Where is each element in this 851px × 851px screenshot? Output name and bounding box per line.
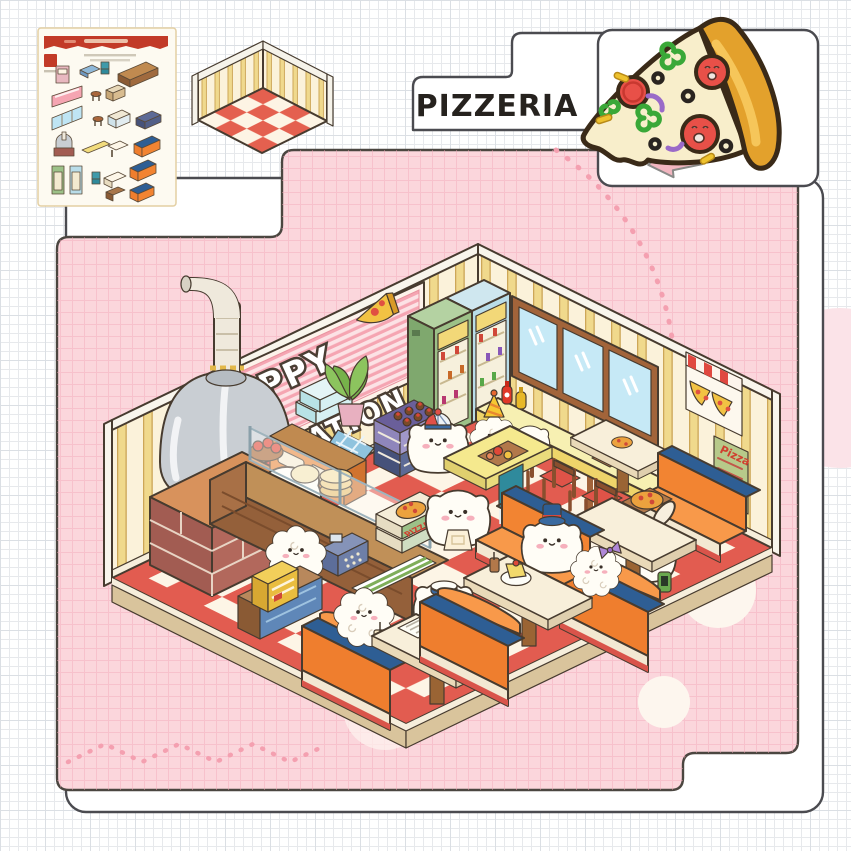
waitress-apron xyxy=(444,530,472,550)
cream-circle-2 xyxy=(638,676,690,728)
sticker-fridge-blue xyxy=(70,166,82,194)
puppy-bow xyxy=(571,547,621,596)
pizzeria-label: PIZZERIA xyxy=(416,89,579,124)
sticker-poster xyxy=(56,66,69,83)
sticker-sheet xyxy=(38,28,176,206)
sticker-teal-chair-2 xyxy=(92,172,100,184)
illustration: PIZZERIA PUPPY VACATIO xyxy=(0,0,851,851)
sticker-fridge-green xyxy=(52,166,64,194)
sticker-sheet-logo xyxy=(44,54,57,67)
top-hat xyxy=(539,504,565,526)
right-wall-cap xyxy=(772,390,780,556)
sticker-teal-chair xyxy=(101,62,109,74)
left-wall-cap xyxy=(104,420,112,586)
product-image: PIZZERIA PUPPY VACATIO xyxy=(0,0,851,851)
